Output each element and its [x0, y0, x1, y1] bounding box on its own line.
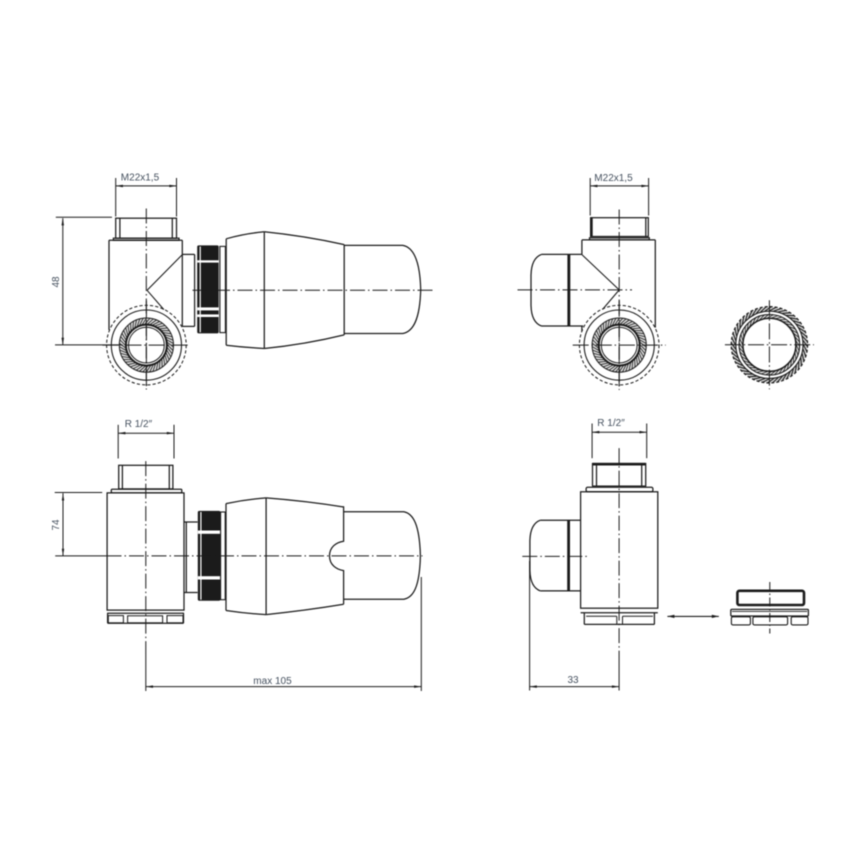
svg-text:M22x1,5: M22x1,5	[121, 173, 160, 184]
svg-text:max 105: max 105	[253, 676, 292, 687]
svg-text:48: 48	[51, 276, 62, 288]
svg-text:R 1/2″: R 1/2″	[597, 418, 625, 429]
svg-text:74: 74	[51, 519, 62, 531]
svg-text:33: 33	[568, 675, 580, 686]
svg-text:R 1/2″: R 1/2″	[125, 419, 153, 430]
svg-text:M22x1,5: M22x1,5	[594, 173, 633, 184]
